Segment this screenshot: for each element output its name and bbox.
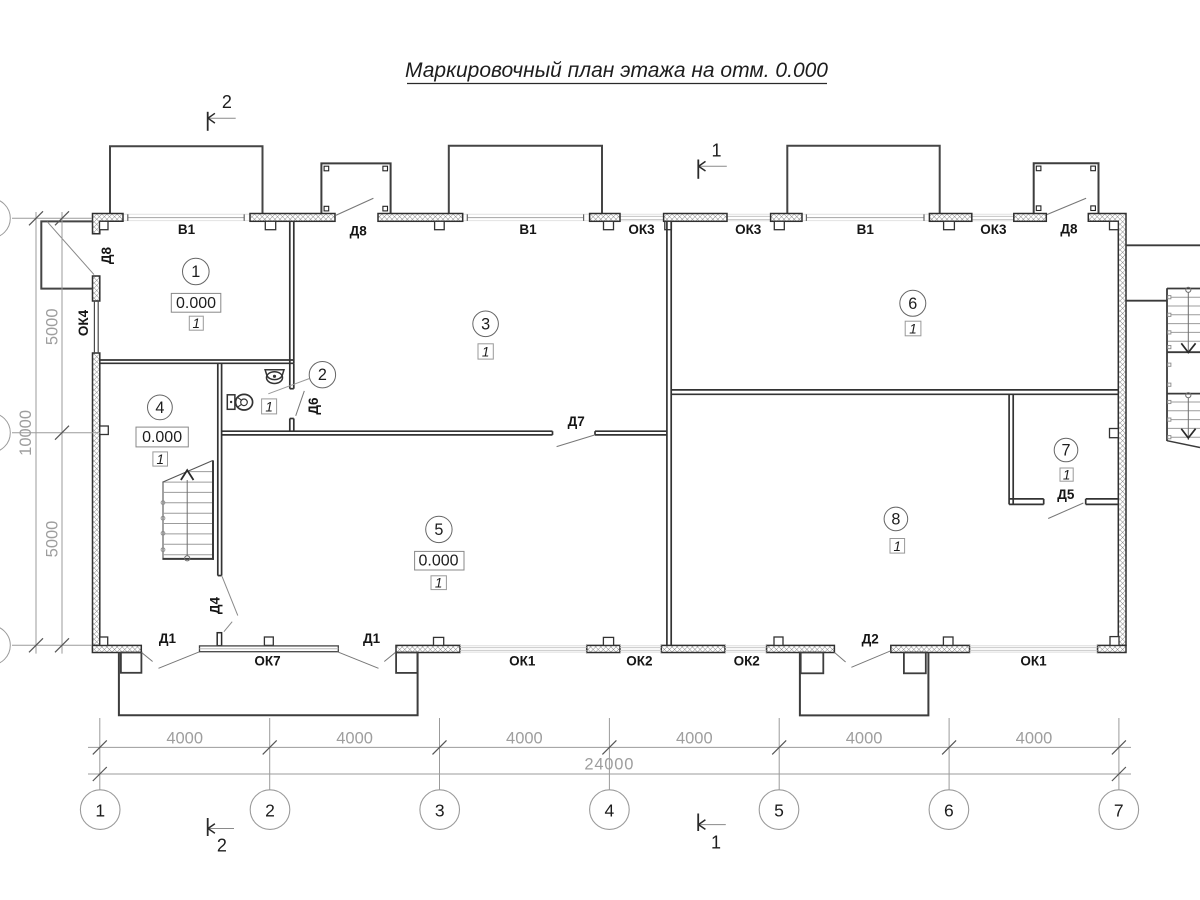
svg-text:7: 7 — [1061, 442, 1070, 460]
svg-text:4000: 4000 — [676, 730, 713, 748]
svg-text:8: 8 — [891, 510, 900, 528]
svg-text:Д6: Д6 — [306, 397, 321, 415]
svg-text:4: 4 — [605, 800, 615, 820]
svg-text:5000: 5000 — [44, 521, 62, 558]
svg-text:ОК7: ОК7 — [254, 653, 280, 668]
svg-text:3: 3 — [435, 800, 445, 820]
svg-text:Д7: Д7 — [568, 414, 585, 429]
svg-text:4000: 4000 — [846, 730, 883, 748]
svg-text:4000: 4000 — [506, 730, 543, 748]
svg-text:ОК3: ОК3 — [628, 222, 655, 237]
svg-text:24000: 24000 — [584, 756, 634, 774]
svg-text:Маркировочный план этажа на от: Маркировочный план этажа на отм. 0.000 — [405, 59, 828, 82]
svg-text:4: 4 — [155, 399, 164, 417]
svg-text:В1: В1 — [857, 222, 875, 237]
svg-text:Д1: Д1 — [363, 631, 381, 646]
svg-text:ОК2: ОК2 — [626, 653, 652, 668]
svg-text:В1: В1 — [178, 222, 196, 237]
svg-text:0.000: 0.000 — [176, 295, 216, 312]
svg-text:Д4: Д4 — [208, 596, 223, 614]
svg-text:Д5: Д5 — [1057, 487, 1075, 502]
svg-text:ОК3: ОК3 — [735, 222, 762, 237]
svg-text:В1: В1 — [519, 222, 537, 237]
svg-text:1: 1 — [894, 539, 902, 554]
svg-text:1: 1 — [482, 344, 490, 359]
svg-text:1: 1 — [711, 833, 721, 853]
svg-text:ОК3: ОК3 — [980, 222, 1007, 237]
svg-text:2: 2 — [222, 92, 232, 112]
svg-text:Д2: Д2 — [862, 632, 879, 647]
svg-text:ОК4: ОК4 — [76, 309, 91, 336]
svg-text:Д8: Д8 — [99, 246, 114, 264]
svg-text:4000: 4000 — [336, 730, 373, 748]
svg-text:Д8: Д8 — [350, 223, 368, 238]
svg-text:Д1: Д1 — [159, 631, 177, 646]
svg-text:6: 6 — [908, 295, 917, 313]
svg-text:1: 1 — [1063, 468, 1071, 483]
svg-text:1: 1 — [156, 452, 164, 467]
svg-text:2: 2 — [318, 366, 327, 384]
svg-text:1: 1 — [265, 399, 273, 414]
svg-text:5000: 5000 — [44, 308, 62, 345]
svg-text:ОК2: ОК2 — [734, 653, 760, 668]
svg-text:1: 1 — [191, 263, 200, 281]
svg-text:1: 1 — [711, 141, 721, 161]
svg-text:7: 7 — [1114, 800, 1124, 820]
svg-text:Д8: Д8 — [1060, 221, 1078, 236]
svg-text:6: 6 — [944, 800, 954, 820]
svg-text:2: 2 — [265, 800, 275, 820]
svg-text:5: 5 — [434, 521, 443, 539]
svg-text:10000: 10000 — [17, 410, 35, 456]
svg-text:2: 2 — [217, 836, 227, 856]
svg-text:1: 1 — [909, 322, 917, 337]
svg-text:1: 1 — [95, 800, 105, 820]
svg-text:ОК1: ОК1 — [1020, 653, 1047, 668]
svg-text:3: 3 — [481, 315, 490, 333]
svg-text:4000: 4000 — [1016, 730, 1053, 748]
svg-text:4000: 4000 — [166, 730, 203, 748]
svg-text:5: 5 — [774, 800, 784, 820]
svg-text:1: 1 — [435, 576, 443, 591]
svg-text:1: 1 — [193, 316, 201, 331]
svg-text:0.000: 0.000 — [142, 429, 182, 446]
svg-text:0.000: 0.000 — [418, 553, 458, 570]
svg-text:ОК1: ОК1 — [509, 653, 536, 668]
